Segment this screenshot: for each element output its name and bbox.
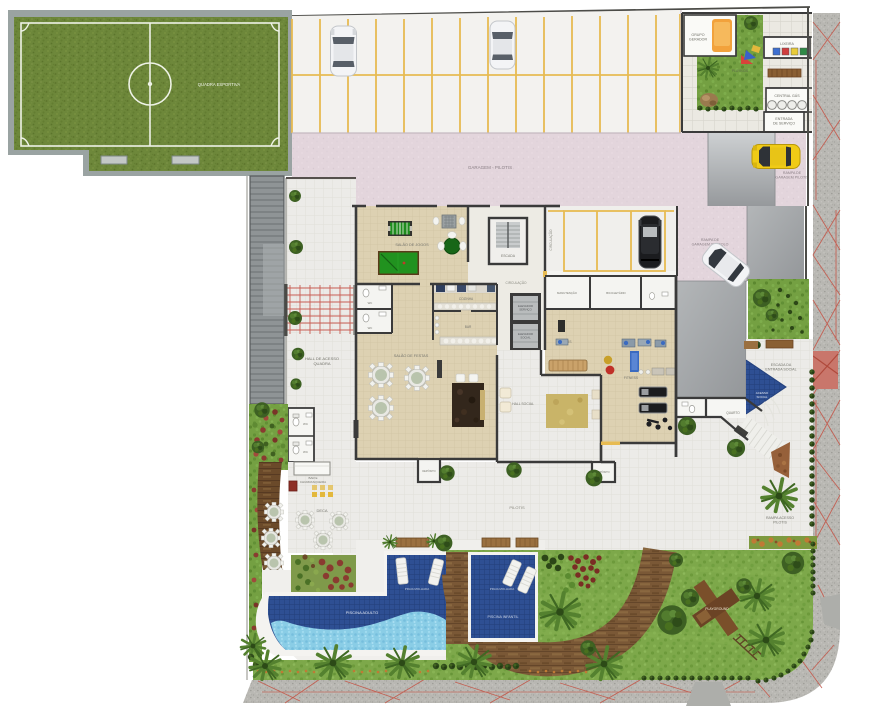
svg-text:ENTRADA: ENTRADA — [775, 117, 793, 121]
svg-text:WC: WC — [368, 326, 373, 330]
svg-text:CENTRAL GÁS: CENTRAL GÁS — [774, 94, 800, 98]
svg-text:PILOTIS: PILOTIS — [773, 521, 787, 525]
svg-text:RAMPA DE: RAMPA DE — [783, 171, 802, 175]
svg-text:SOCIAL: SOCIAL — [520, 335, 531, 339]
svg-text:PRAIA MOLHADA: PRAIA MOLHADA — [405, 587, 430, 591]
svg-text:CIRCULAÇÃO: CIRCULAÇÃO — [506, 280, 527, 285]
svg-text:DE SERVIÇO: DE SERVIÇO — [773, 122, 795, 126]
svg-text:ESCADA DA: ESCADA DA — [771, 363, 792, 367]
svg-text:GRUPO: GRUPO — [691, 33, 704, 37]
svg-text:PRAIA MOLHADA: PRAIA MOLHADA — [490, 587, 515, 591]
svg-text:CIRCULAÇÃO: CIRCULAÇÃO — [548, 229, 553, 250]
svg-text:COZINHA: COZINHA — [459, 297, 474, 301]
svg-text:DECA: DECA — [316, 508, 327, 513]
svg-text:BICICLETÁRIO: BICICLETÁRIO — [606, 291, 626, 295]
svg-text:ESCADA: ESCADA — [501, 254, 516, 258]
svg-text:PISCINA ADULTO: PISCINA ADULTO — [346, 610, 379, 615]
svg-text:WC: WC — [368, 301, 373, 305]
svg-text:RAMPA ACESSO: RAMPA ACESSO — [766, 516, 794, 520]
svg-text:PILOTIS: PILOTIS — [509, 505, 525, 510]
svg-text:BAR: BAR — [465, 325, 472, 329]
svg-text:GARAGEM - PILOTIS: GARAGEM - PILOTIS — [468, 165, 512, 170]
svg-text:SOCIAL: SOCIAL — [756, 395, 767, 399]
svg-text:WC: WC — [303, 450, 309, 454]
svg-text:RAMPA DE: RAMPA DE — [701, 238, 720, 242]
svg-text:QUADRA: QUADRA — [313, 361, 330, 366]
svg-text:PLAYGROUND: PLAYGROUND — [705, 607, 729, 611]
svg-text:CHURRASQUEIRA: CHURRASQUEIRA — [300, 480, 326, 484]
svg-text:PLAYKIDS: PLAYKIDS — [732, 69, 749, 73]
svg-text:QUARTO: QUARTO — [726, 411, 740, 415]
svg-text:QUADRA ESPORTIVA: QUADRA ESPORTIVA — [198, 82, 241, 87]
svg-text:SALÃO DE FESTAS: SALÃO DE FESTAS — [394, 353, 429, 358]
svg-text:SERVIÇO: SERVIÇO — [519, 307, 532, 311]
svg-text:MANUTENÇÃO: MANUTENÇÃO — [557, 290, 578, 295]
svg-text:SALÃO DE JOGOS: SALÃO DE JOGOS — [395, 242, 429, 247]
svg-text:HALL SOCIAL: HALL SOCIAL — [512, 402, 534, 406]
svg-text:ENTRADA SOCIAL: ENTRADA SOCIAL — [765, 368, 796, 372]
svg-text:GERADOR: GERADOR — [689, 38, 708, 42]
svg-text:FITNESS: FITNESS — [624, 376, 639, 380]
svg-text:WC: WC — [303, 422, 309, 426]
svg-text:LIXEIRA: LIXEIRA — [780, 42, 794, 46]
svg-text:GARAGEM PILOTIS: GARAGEM PILOTIS — [775, 176, 809, 180]
svg-text:PISCINA INFANTIL: PISCINA INFANTIL — [488, 615, 519, 619]
